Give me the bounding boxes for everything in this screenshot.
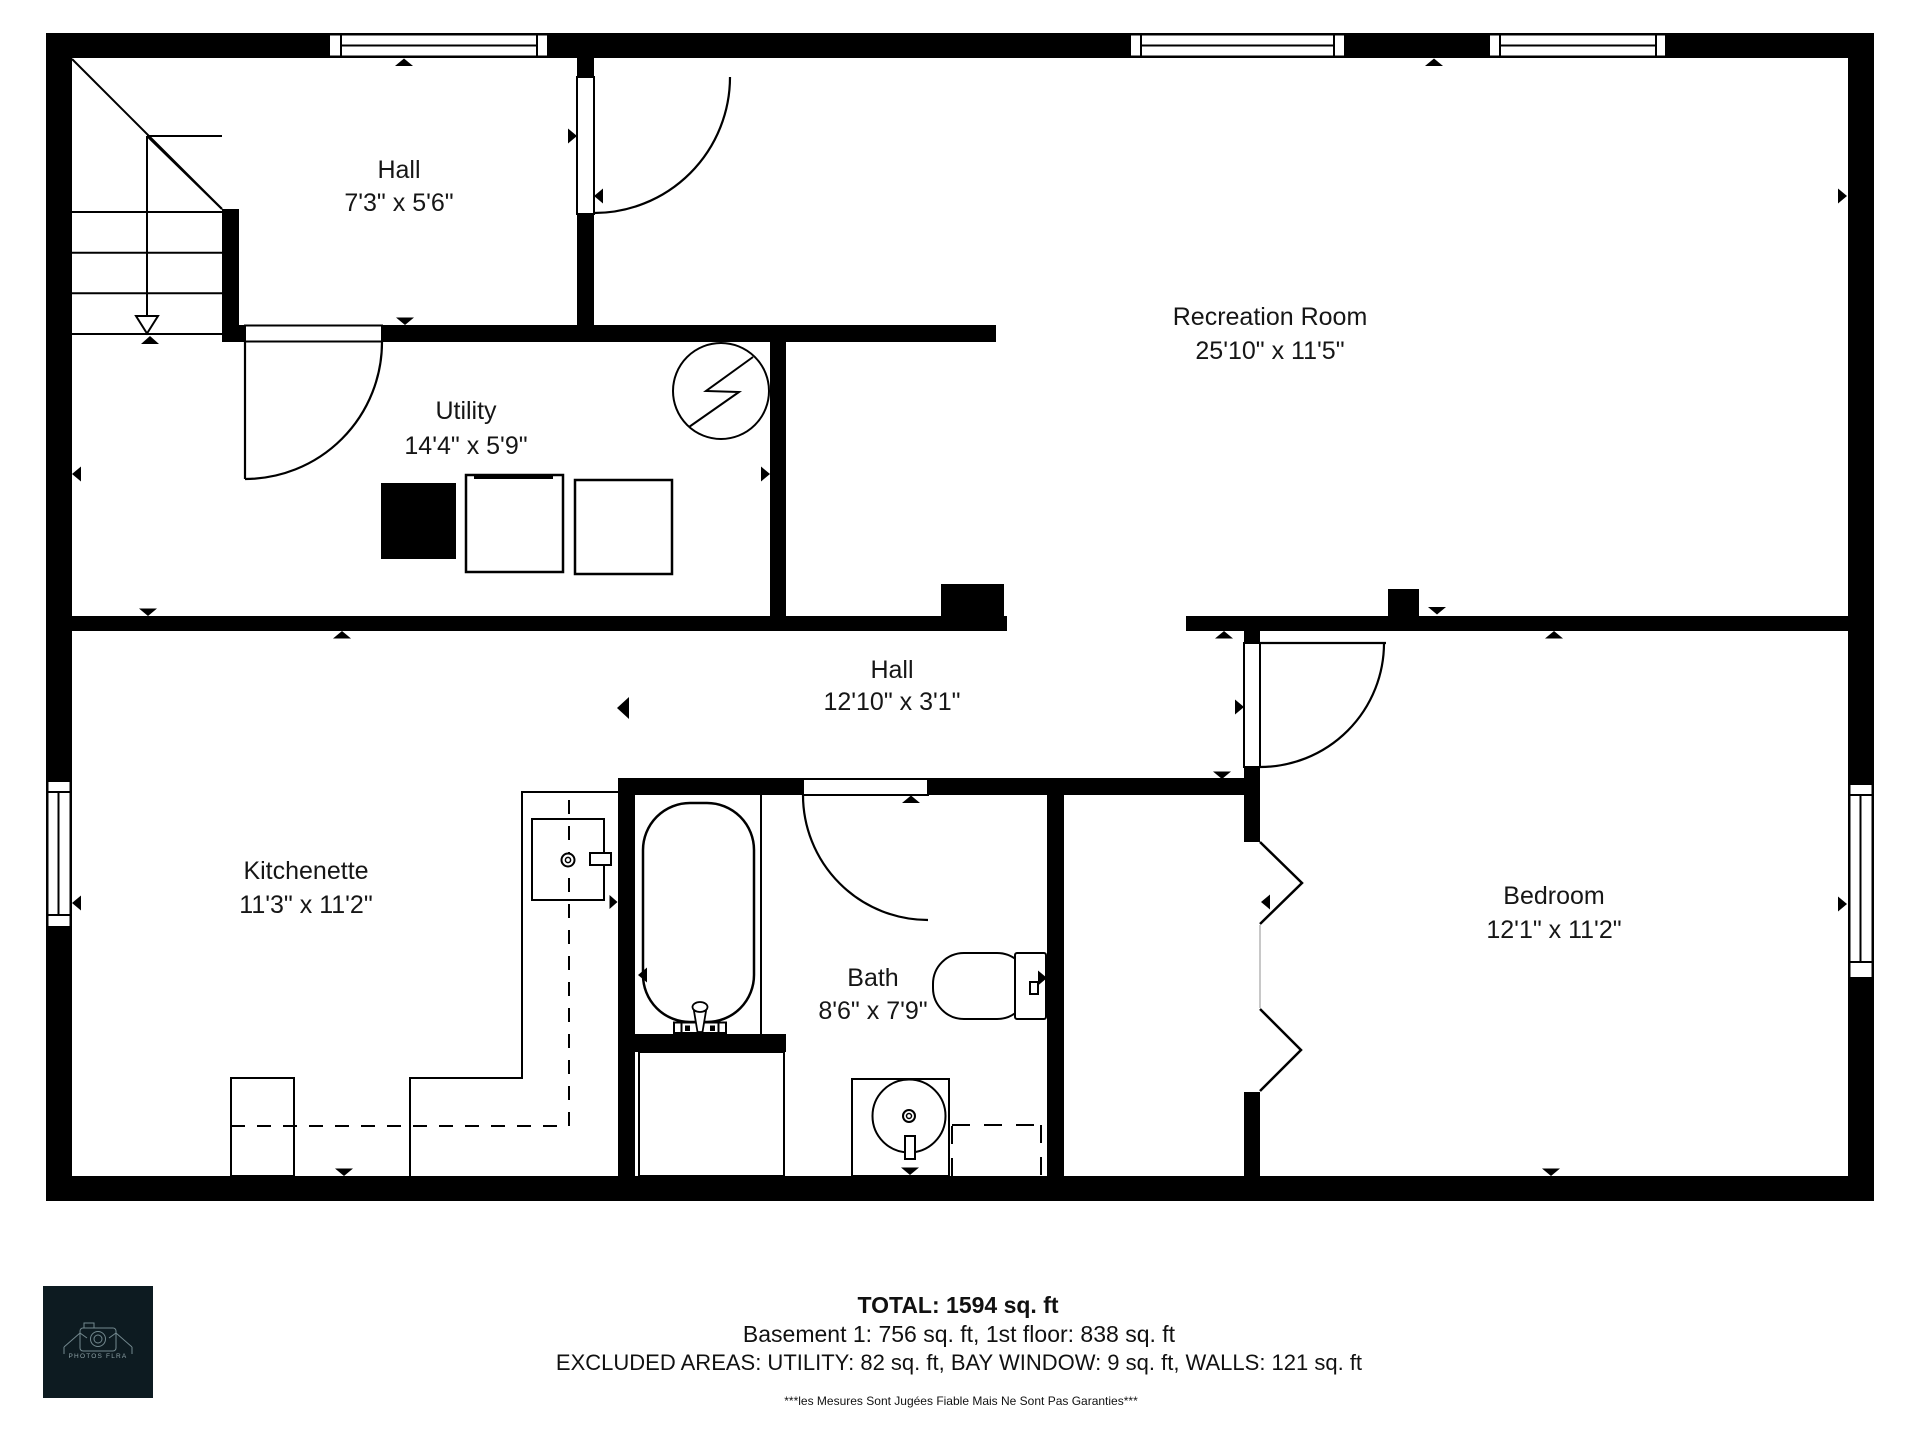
svg-text:8'6" x 7'9": 8'6" x 7'9" — [818, 997, 927, 1025]
svg-text:EXCLUDED AREAS: UTILITY: 82 sq: EXCLUDED AREAS: UTILITY: 82 sq. ft, BAY … — [556, 1350, 1362, 1375]
svg-text:TOTAL: 1594 sq. ft: TOTAL: 1594 sq. ft — [857, 1292, 1058, 1318]
svg-text:7'3" x 5'6": 7'3" x 5'6" — [344, 189, 453, 217]
svg-text:12'1" x 11'2": 12'1" x 11'2" — [1486, 916, 1621, 944]
svg-text:Recreation Room: Recreation Room — [1173, 303, 1368, 331]
svg-text:***les Mesures Sont Jugées Fia: ***les Mesures Sont Jugées Fiable Mais N… — [784, 1394, 1138, 1408]
svg-text:Basement 1: 756 sq. ft, 1st fl: Basement 1: 756 sq. ft, 1st floor: 838 s… — [743, 1321, 1176, 1347]
svg-text:Utility: Utility — [435, 397, 497, 425]
svg-text:Hall: Hall — [870, 656, 913, 684]
svg-text:Hall: Hall — [377, 156, 420, 184]
svg-text:PHOTOS FLRA: PHOTOS FLRA — [69, 1353, 128, 1360]
svg-text:11'3" x 11'2": 11'3" x 11'2" — [239, 891, 372, 919]
svg-text:Bedroom: Bedroom — [1503, 882, 1604, 910]
svg-text:12'10" x 3'1": 12'10" x 3'1" — [823, 688, 960, 716]
svg-text:Bath: Bath — [847, 964, 898, 992]
svg-text:14'4" x 5'9": 14'4" x 5'9" — [404, 432, 527, 460]
svg-text:Kitchenette: Kitchenette — [243, 857, 368, 885]
svg-text:25'10" x 11'5": 25'10" x 11'5" — [1195, 337, 1344, 365]
